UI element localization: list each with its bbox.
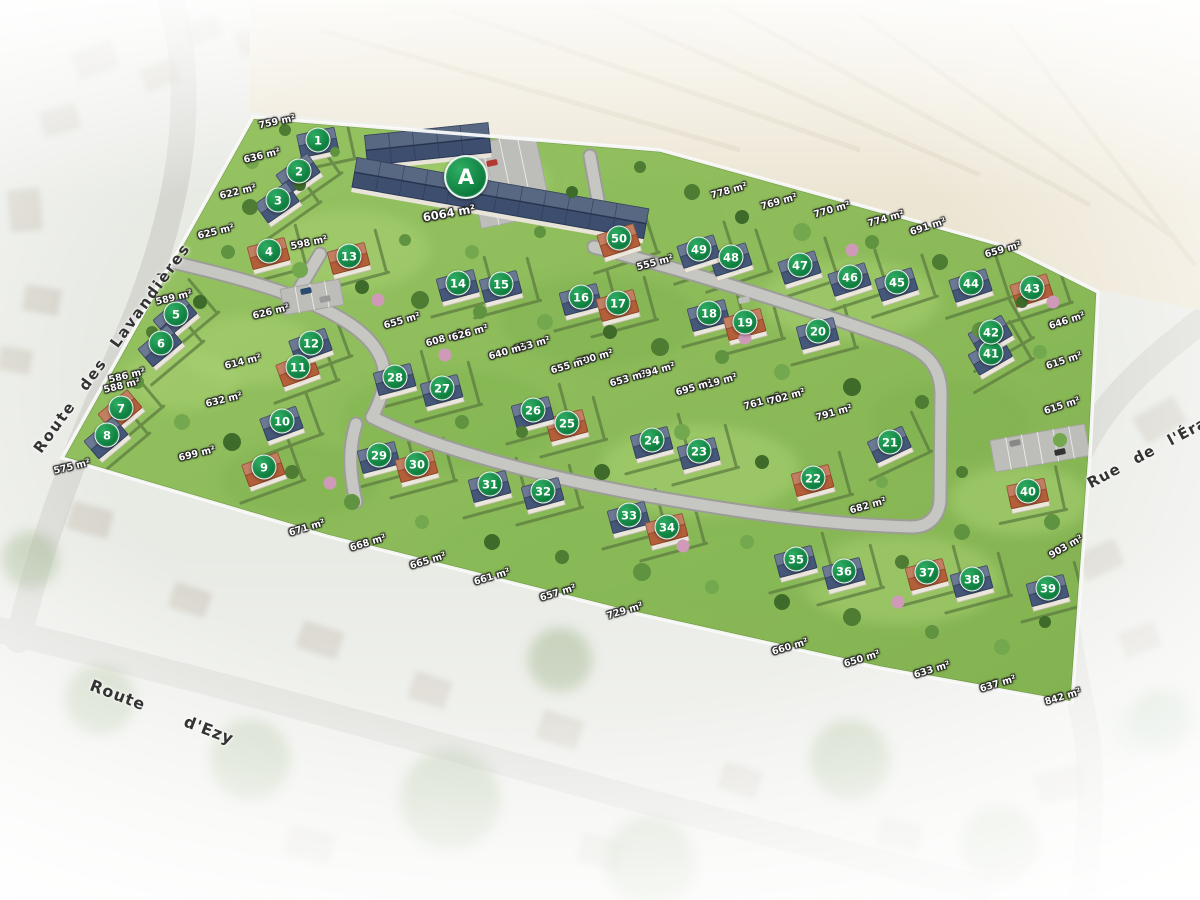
lot-marker-16[interactable]: 16 <box>569 285 594 310</box>
lot-marker-50[interactable]: 50 <box>607 226 632 251</box>
area-label: 633 m² <box>913 659 952 680</box>
area-label: 575 m² <box>53 457 92 477</box>
lot-marker-18[interactable]: 18 <box>697 301 722 326</box>
street-name-rue-de-l-erable: Rue de l'Érable <box>1084 400 1200 492</box>
lot-marker-33[interactable]: 33 <box>617 503 642 528</box>
lot-marker-29[interactable]: 29 <box>367 443 392 468</box>
area-label: 659 m² <box>984 240 1023 261</box>
area-label: 694 m² <box>638 361 677 382</box>
lot-marker-15[interactable]: 15 <box>489 272 514 297</box>
area-label: 903 m² <box>1047 533 1085 561</box>
area-label: 682 m² <box>849 496 888 517</box>
lot-marker-40[interactable]: 40 <box>1016 479 1041 504</box>
area-label: 614 m² <box>224 352 263 372</box>
street-name-route-d-ezy: Route d'Ezy <box>87 676 236 748</box>
lot-marker-3[interactable]: 3 <box>266 188 291 213</box>
lot-marker-39[interactable]: 39 <box>1036 576 1061 601</box>
area-label: 646 m² <box>1048 310 1087 332</box>
lot-marker-12[interactable]: 12 <box>299 331 324 356</box>
area-label: 661 m² <box>473 566 512 587</box>
lot-marker-44[interactable]: 44 <box>959 271 984 296</box>
lot-marker-19[interactable]: 19 <box>733 310 758 335</box>
area-label: 650 m² <box>843 648 882 669</box>
lot-marker-49[interactable]: 49 <box>687 237 712 262</box>
lot-marker-36[interactable]: 36 <box>832 559 857 584</box>
lot-marker-47[interactable]: 47 <box>788 253 813 278</box>
area-label: 653 m² <box>609 369 648 390</box>
lot-marker-38[interactable]: 38 <box>960 567 985 592</box>
area-label: 729 m² <box>606 600 645 621</box>
area-label: 622 m² <box>219 182 258 202</box>
lot-marker-11[interactable]: 11 <box>286 355 311 380</box>
lot-marker-17[interactable]: 17 <box>606 291 631 316</box>
lot-marker-10[interactable]: 10 <box>270 409 295 434</box>
area-label: 791 m² <box>815 403 854 424</box>
area-label: 588 m² <box>103 376 142 396</box>
lot-marker-20[interactable]: 20 <box>806 319 831 344</box>
area-label: 655 m² <box>383 311 422 332</box>
area-label: 615 m² <box>1045 350 1084 372</box>
area-label: 615 m² <box>1043 395 1082 417</box>
area-label: 700 m² <box>576 348 615 369</box>
area-label: 770 m² <box>813 200 852 221</box>
lot-marker-14[interactable]: 14 <box>446 271 471 296</box>
lot-marker-5[interactable]: 5 <box>164 302 189 327</box>
area-label: 759 m² <box>258 113 297 131</box>
area-label: 665 m² <box>409 550 448 571</box>
lot-marker-24[interactable]: 24 <box>640 428 665 453</box>
area-label: 702 m² <box>768 387 807 408</box>
lot-marker-32[interactable]: 32 <box>531 479 556 504</box>
lot-marker-a[interactable]: A <box>444 155 488 199</box>
lot-marker-45[interactable]: 45 <box>885 270 910 295</box>
area-label: 769 m² <box>760 192 799 213</box>
lot-marker-42[interactable]: 42 <box>979 320 1004 345</box>
lot-marker-34[interactable]: 34 <box>655 515 680 540</box>
lot-marker-13[interactable]: 13 <box>337 244 362 269</box>
area-label: 842 m² <box>1044 686 1083 707</box>
area-label: 774 m² <box>867 209 906 230</box>
area-label: 637 m² <box>979 673 1018 694</box>
area-label: 691 m² <box>909 216 948 238</box>
area-label: 660 m² <box>771 636 810 657</box>
lot-marker-48[interactable]: 48 <box>719 245 744 270</box>
area-label: 632 m² <box>205 390 244 410</box>
lot-marker-27[interactable]: 27 <box>430 376 455 401</box>
area-label: 778 m² <box>710 181 749 202</box>
area-label: 695 m² <box>675 378 714 399</box>
lot-marker-7[interactable]: 7 <box>109 396 134 421</box>
area-label: 555 m² <box>636 253 675 273</box>
area-label: 626 m² <box>252 302 291 322</box>
site-plan: Route des Lavandières Route d'Ezy Rue de… <box>0 0 1200 900</box>
lot-marker-30[interactable]: 30 <box>405 452 430 477</box>
lot-marker-37[interactable]: 37 <box>915 560 940 585</box>
area-label: 653 m² <box>513 335 552 356</box>
area-label: 598 m² <box>290 234 329 252</box>
area-label: 719 m² <box>700 372 739 393</box>
lot-marker-23[interactable]: 23 <box>687 439 712 464</box>
lot-marker-28[interactable]: 28 <box>383 365 408 390</box>
area-label: 671 m² <box>288 517 327 538</box>
area-label: 625 m² <box>197 222 236 242</box>
lot-marker-6[interactable]: 6 <box>149 331 174 356</box>
lot-marker-9[interactable]: 9 <box>252 455 277 480</box>
lot-marker-22[interactable]: 22 <box>801 466 826 491</box>
area-label-lot-a: 6064 m² <box>422 202 477 225</box>
area-label: 626 m² <box>451 323 490 344</box>
area-label: 655 m² <box>550 356 589 377</box>
lot-marker-25[interactable]: 25 <box>555 411 580 436</box>
area-label: 657 m² <box>539 582 578 603</box>
lot-marker-46[interactable]: 46 <box>838 265 863 290</box>
area-label: 608 m² <box>425 329 464 350</box>
plan-overlay: Route des Lavandières Route d'Ezy Rue de… <box>0 0 1200 900</box>
lot-marker-2[interactable]: 2 <box>287 159 312 184</box>
lot-marker-26[interactable]: 26 <box>521 398 546 423</box>
lot-marker-4[interactable]: 4 <box>257 239 282 264</box>
area-label: 761 m² <box>743 392 782 413</box>
area-label: 636 m² <box>243 146 282 166</box>
area-label: 586 m² <box>108 366 147 386</box>
area-label: 640 m² <box>488 342 527 363</box>
lot-marker-43[interactable]: 43 <box>1020 276 1045 301</box>
area-label: 668 m² <box>349 532 388 553</box>
area-label: 699 m² <box>178 444 217 464</box>
lot-marker-1[interactable]: 1 <box>306 128 331 153</box>
lot-marker-8[interactable]: 8 <box>95 423 120 448</box>
lot-marker-31[interactable]: 31 <box>478 472 503 497</box>
lot-marker-35[interactable]: 35 <box>784 547 809 572</box>
lot-marker-21[interactable]: 21 <box>878 430 903 455</box>
